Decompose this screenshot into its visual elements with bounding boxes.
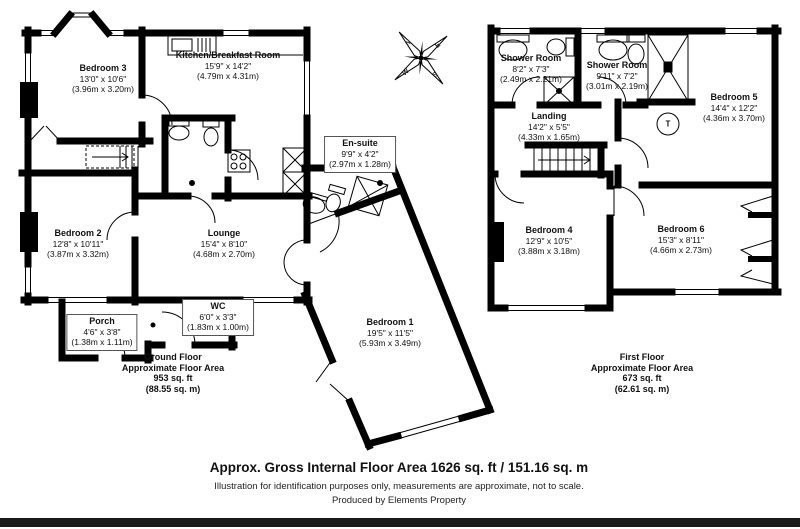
room-label-bedroom-4: Bedroom 4 12'9" x 10'5" (3.88m x 3.18m) (518, 225, 580, 257)
floorplan-page: N E S W Bedroom 3 13'0" x 10'6" (3.96m x… (0, 0, 800, 529)
room-label-bedroom-5: Bedroom 5 14'4" x 12'2" (4.36m x 3.70m) (703, 92, 765, 124)
room-label-bedroom-1: Bedroom 1 19'5" x 11'5" (5.93m x 3.49m) (359, 317, 421, 349)
room-label-porch: Porch 4'6" x 3'8" (1.38m x 1.11m) (66, 314, 137, 351)
room-label-shower-room-1: Shower Room 8'2" x 7'3" (2.49m x 2.21m) (500, 53, 562, 85)
room-label-landing: Landing 14'2" x 5'5" (4.33m x 1.65m) (518, 111, 580, 143)
bottom-bar (0, 518, 800, 527)
room-label-wc: WC 6'0" x 3'3" (1.83m x 1.00m) (182, 299, 254, 336)
bathroom-fixtures-ground (169, 121, 219, 186)
compass-rose-icon: N E S W (373, 10, 469, 106)
footer-title: Approx. Gross Internal Floor Area 1626 s… (210, 460, 588, 475)
room-label-shower-room-2: Shower Room 9'11" x 7'2" (3.01m x 2.19m) (586, 60, 648, 92)
footer-credit: Produced by Elements Property (332, 495, 466, 506)
first-floor-summary: First Floor Approximate Floor Area 673 s… (591, 352, 693, 394)
ground-floor-summary: Ground Floor Approximate Floor Area 953 … (122, 352, 224, 394)
room-label-lounge: Lounge 15'4" x 8'10" (4.68m x 2.70m) (193, 228, 255, 260)
eaves-marks (741, 196, 773, 284)
footer-disclaimer: Illustration for identification purposes… (214, 481, 583, 492)
staircase-first (534, 148, 590, 172)
hall-dot (151, 323, 156, 328)
staircase-ground (86, 146, 138, 168)
room-label-bedroom-3: Bedroom 3 13'0" x 10'6" (3.96m x 3.20m) (72, 63, 134, 95)
room-label-bedroom-6: Bedroom 6 15'3" x 8'11" (4.66m x 2.73m) (650, 224, 712, 256)
room-label-ensuite: En-suite 9'9" x 4'2" (2.97m x 1.28m) (324, 136, 396, 173)
room-label-kitchen: Kitchen/Breakfast Room 15'9" x 14'2" (4.… (176, 50, 281, 82)
room-label-bedroom-2: Bedroom 2 12'8" x 10'11" (3.87m x 3.32m) (47, 228, 109, 260)
water-tank-label: T (666, 120, 671, 129)
